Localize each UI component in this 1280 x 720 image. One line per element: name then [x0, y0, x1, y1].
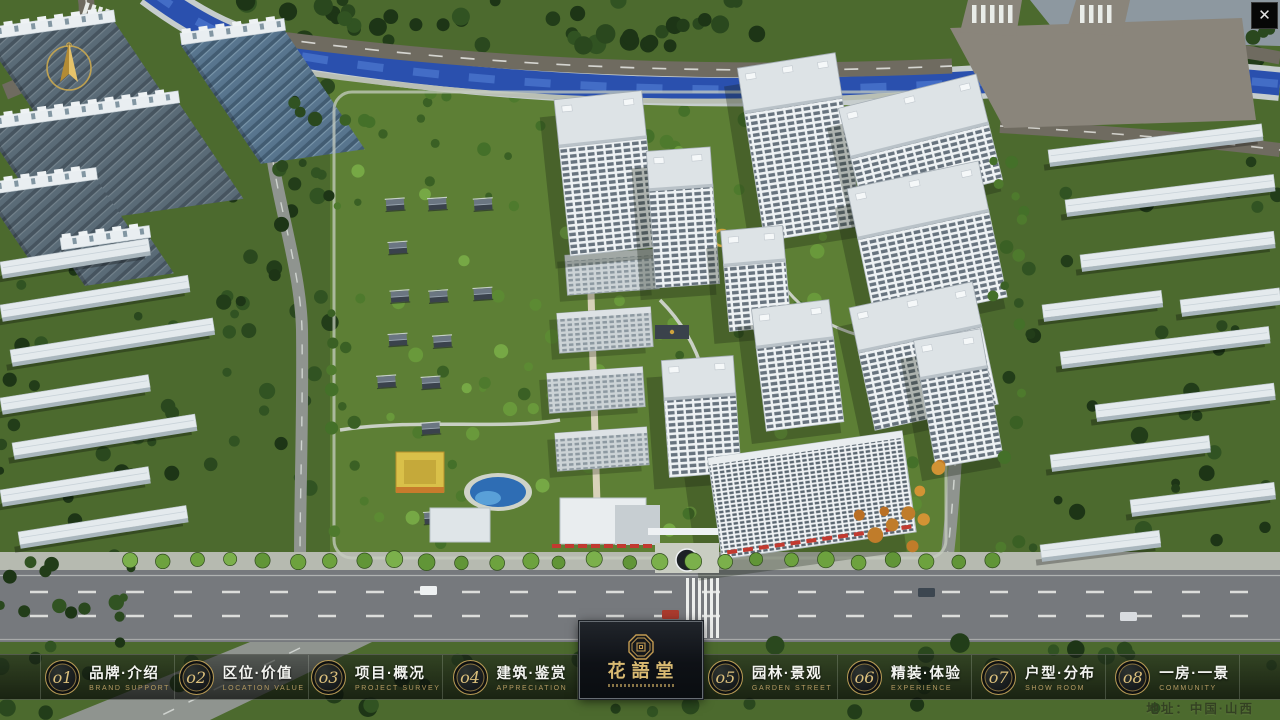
logo-tagline [608, 684, 674, 687]
nav-label-cn: 户型·分布 [1025, 662, 1095, 683]
nav-badge-8: o8 [1115, 660, 1150, 695]
project-logo[interactable]: 花語堂 [579, 621, 703, 699]
nav-label-cn: 项目·概况 [355, 662, 425, 683]
nav-texts: 项目·概况 PROJECT SURVEY [355, 662, 441, 693]
nav-label-en: EXPERIENCE [891, 685, 952, 692]
nav-item-views[interactable]: o8 一房·一景 COMMUNITY [1106, 655, 1240, 699]
nav-label-en: APPRECIATION [497, 685, 568, 692]
nav-label-cn: 品牌·介绍 [89, 662, 159, 683]
nav-label-en: COMMUNITY [1159, 685, 1217, 692]
nav-item-architecture[interactable]: o4 建筑·鉴赏 APPRECIATION [443, 655, 577, 699]
nav-label-en: PROJECT SURVEY [355, 685, 441, 692]
nav-item-project[interactable]: o3 项目·概况 PROJECT SURVEY [309, 655, 443, 699]
nav-badge-7: o7 [981, 660, 1016, 695]
nav-badge-3: o3 [311, 660, 346, 695]
car [1120, 612, 1137, 621]
nav-label-cn: 一房·一景 [1159, 662, 1229, 683]
nav-label-en: BRAND SUPPORT [89, 685, 170, 692]
presentation-stage: ✕ o1 品牌·介绍 BRAND SUPPORT o2 区位·价值 LOCATI… [0, 0, 1280, 720]
nav-badge-6: o6 [847, 660, 882, 695]
bottom-navbar: o1 品牌·介绍 BRAND SUPPORT o2 区位·价值 LOCATION… [0, 654, 1280, 700]
entrance-canopy [648, 528, 718, 535]
aerial-masterplan-render [0, 0, 1280, 720]
nav-item-floorplan[interactable]: o7 户型·分布 SHOW ROOM [972, 655, 1106, 699]
north-compass-icon [40, 34, 100, 100]
nav-texts: 一房·一景 COMMUNITY [1159, 662, 1229, 693]
nav-texts: 区位·价值 LOCATION VALUE [223, 662, 305, 693]
retail-block [430, 508, 490, 542]
nav-label-cn: 区位·价值 [223, 662, 293, 683]
car [918, 588, 935, 597]
nav-texts: 精装·体验 EXPERIENCE [891, 662, 961, 693]
nav-badge-4: o4 [453, 660, 488, 695]
nav-label-cn: 建筑·鉴赏 [497, 662, 567, 683]
nav-item-interior[interactable]: o6 精装·体验 EXPERIENCE [838, 655, 972, 699]
nav-label-en: SHOW ROOM [1025, 685, 1085, 692]
car [420, 586, 437, 595]
nav-label-en: GARDEN STREET [752, 685, 832, 692]
nav-label-cn: 园林·景观 [752, 662, 822, 683]
nav-label-cn: 精装·体验 [891, 662, 961, 683]
close-button[interactable]: ✕ [1251, 2, 1278, 29]
nav-texts: 园林·景观 GARDEN STREET [752, 662, 832, 693]
nav-texts: 建筑·鉴赏 APPRECIATION [497, 662, 568, 693]
nav-item-garden[interactable]: o5 园林·景观 GARDEN STREET [704, 655, 838, 699]
nav-badge-5: o5 [708, 660, 743, 695]
nav-badge-2: o2 [179, 660, 214, 695]
car [662, 610, 679, 619]
address-watermark: 地址：中国·山西 [1146, 698, 1254, 717]
nav-label-en: LOCATION VALUE [223, 685, 305, 692]
octagonal-seal-icon [628, 634, 654, 660]
nav-item-brand[interactable]: o1 品牌·介绍 BRAND SUPPORT [40, 655, 175, 699]
tower [630, 147, 720, 300]
nav-badge-1: o1 [45, 660, 80, 695]
logo-title: 花語堂 [602, 663, 680, 681]
nav-item-location[interactable]: o2 区位·价值 LOCATION VALUE [175, 655, 309, 699]
nav-texts: 品牌·介绍 BRAND SUPPORT [89, 662, 170, 693]
nav-texts: 户型·分布 SHOW ROOM [1025, 662, 1095, 693]
